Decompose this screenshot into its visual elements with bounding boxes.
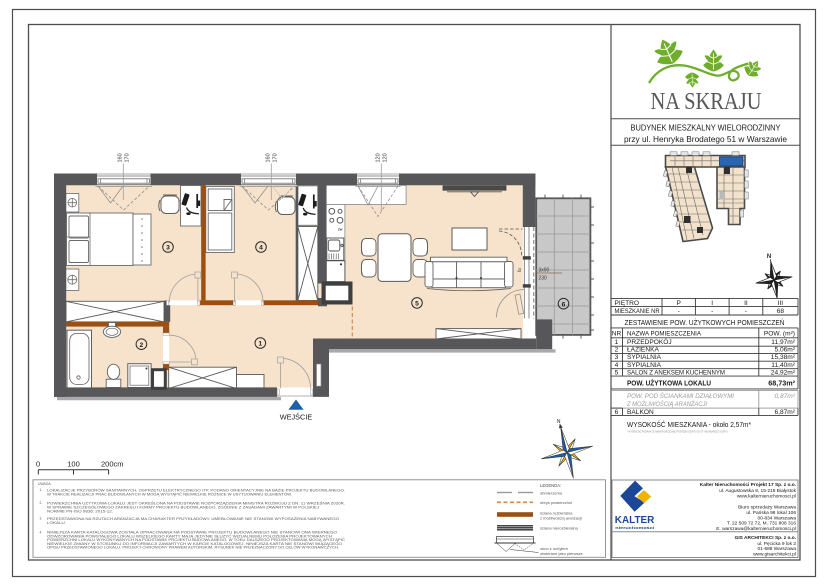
svg-text:ul. Pęcicka 9 lok 2: ul. Pęcicka 9 lok 2 — [757, 541, 796, 547]
svg-text:6,87m²: 6,87m² — [774, 409, 795, 416]
svg-text:Kalter Nieruchomości Projekt 1: Kalter Nieruchomości Projekt 17 Sp. z o.… — [700, 482, 796, 488]
svg-text:120: 120 — [376, 153, 382, 162]
svg-text:170: 170 — [273, 153, 279, 162]
svg-text:W TRAKCIE REALIZACJI PRAC BUDO: W TRAKCIE REALIZACJI PRAC BUDOWLANYCH W … — [47, 491, 292, 496]
svg-text:ul. Pańska 98 lokal 106: ul. Pańska 98 lokal 106 — [746, 510, 796, 516]
svg-text:OPISU PRZEDSTAWIONEGO LOKALU.: OPISU PRZEDSTAWIONEGO LOKALU. PROJEKT CH… — [47, 545, 339, 550]
svg-text:ul. Augustowska 8, 15-218 Biał: ul. Augustowska 8, 15-218 Białystok — [719, 488, 796, 494]
svg-text:obrys powierzchni: obrys powierzchni — [540, 500, 572, 505]
svg-text:4: 4 — [615, 362, 619, 369]
svg-text:N: N — [557, 419, 561, 425]
svg-text:SALON Z ANEKSEM KUCHENNYM: SALON Z ANEKSEM KUCHENNYM — [627, 369, 725, 376]
svg-text:1.: 1. — [40, 488, 43, 492]
svg-text:nieruchomości: nieruchomości — [615, 525, 654, 530]
svg-text:160: 160 — [266, 153, 272, 162]
svg-text:00-834 Warszawa: 00-834 Warszawa — [758, 516, 797, 522]
svg-text:01-688 Warszawa: 01-688 Warszawa — [758, 546, 797, 552]
svg-text:-: - — [711, 308, 713, 315]
svg-text:4.: 4. — [40, 531, 43, 535]
svg-text:otwierane jako pierwsze: otwierane jako pierwsze — [540, 551, 583, 556]
svg-text:11,97m²: 11,97m² — [771, 339, 796, 346]
svg-text:przy ul. Henryka Brodatego 51: przy ul. Henryka Brodatego 51 w Warszawi… — [624, 135, 787, 144]
svg-text:BALKON: BALKON — [627, 409, 654, 416]
svg-text:6: 6 — [615, 409, 619, 416]
svg-text:* WYSOKOŚĆ PODANA OD NIEWYKOŃC: * WYSOKOŚĆ PODANA OD NIEWYKOŃCZONEJ POSA… — [627, 429, 728, 434]
svg-text:160: 160 — [118, 153, 124, 162]
svg-text:NAZWA POMIESZCZENIA: NAZWA POMIESZCZENIA — [627, 331, 702, 338]
svg-text:P: P — [676, 300, 681, 307]
svg-text:2.: 2. — [40, 501, 43, 505]
svg-text:0: 0 — [36, 460, 40, 469]
svg-text:SYPIALNIA: SYPIALNIA — [627, 362, 662, 369]
svg-text:2: 2 — [140, 342, 144, 349]
svg-text:ZW: ZW — [338, 228, 343, 232]
svg-text:PIĘTRO: PIĘTRO — [615, 300, 640, 307]
svg-text:WEJŚCIE: WEJŚCIE — [280, 413, 313, 422]
svg-text:170: 170 — [125, 153, 131, 162]
svg-text:1: 1 — [615, 339, 619, 346]
svg-text:LOKALU.: LOKALU. — [47, 521, 66, 525]
svg-text:3.: 3. — [40, 517, 43, 521]
svg-text:POW. (m²): POW. (m²) — [764, 331, 795, 338]
svg-text:120: 120 — [383, 153, 389, 162]
svg-text:6: 6 — [562, 301, 566, 308]
svg-text:Biuro sprzedaży Warszawa: Biuro sprzedaży Warszawa — [738, 504, 796, 510]
svg-text:NORMIE PN-ISO 9836: 2015-12.: NORMIE PN-ISO 9836: 2015-12. — [47, 509, 113, 513]
svg-text:3x90: 3x90 — [539, 268, 550, 274]
svg-text:WYSOKOŚĆ MIESZKANIA - około 2,: WYSOKOŚĆ MIESZKANIA - około 2,57m* — [627, 420, 751, 429]
svg-text:3: 3 — [615, 354, 619, 361]
svg-text:LEGENDA:: LEGENDA: — [540, 483, 561, 488]
svg-text:obmierzenia: obmierzenia — [540, 490, 563, 495]
svg-text:POW. UŻYTKOWA LOKALU: POW. UŻYTKOWA LOKALU — [627, 378, 711, 387]
svg-text:T. 22 509 72 72, M. 731 808 31: T. 22 509 72 72, M. 731 808 316 — [727, 521, 796, 527]
svg-text:ŁAZIENKA: ŁAZIENKA — [627, 347, 659, 354]
svg-text:UWAGA:: UWAGA: — [38, 482, 52, 486]
svg-text:100: 100 — [67, 460, 80, 469]
svg-text:ściana nierozbieralna: ściana nierozbieralna — [540, 525, 579, 530]
svg-text:NR: NR — [612, 331, 622, 338]
svg-text:4: 4 — [259, 245, 263, 252]
svg-text:11,40m²: 11,40m² — [771, 362, 796, 369]
svg-text:5: 5 — [615, 369, 619, 376]
svg-text:PRZEDPOKÓJ: PRZEDPOKÓJ — [627, 337, 672, 346]
svg-text:0,87m²: 0,87m² — [774, 393, 795, 400]
svg-text:II: II — [744, 300, 748, 307]
svg-text:www.kalternieruchomosci.pl: www.kalternieruchomosci.pl — [737, 494, 796, 500]
svg-text:N: N — [767, 254, 771, 260]
svg-text:www.gisarchitekci.pl: www.gisarchitekci.pl — [753, 552, 796, 558]
svg-text:PRZEDSTAWIONA NA RZUTACH ARANŻ: PRZEDSTAWIONA NA RZUTACH ARANŻACJA MA CH… — [47, 516, 339, 521]
svg-text:NA SKRAJU: NA SKRAJU — [651, 88, 762, 115]
svg-text:5,06m²: 5,06m² — [774, 347, 795, 354]
svg-text:Z MOŻLIWOŚCIĄ ARANŻACJI: Z MOŻLIWOŚCIĄ ARANŻACJI — [626, 399, 707, 408]
svg-text:SYPIALNIA: SYPIALNIA — [627, 354, 662, 361]
svg-text:III: III — [778, 300, 784, 307]
svg-text:1: 1 — [258, 341, 262, 348]
svg-text:BUDYNEK MIESZKALNY WIELORODZIN: BUDYNEK MIESZKALNY WIELORODZINNY — [631, 123, 781, 133]
svg-text:-: - — [678, 308, 680, 315]
svg-text:E. warszawa@kalternieruchomosc: E. warszawa@kalternieruchomosci.pl — [716, 526, 796, 532]
svg-text:68,73m²: 68,73m² — [768, 378, 795, 387]
svg-text:I: I — [711, 300, 713, 307]
svg-text:200cm: 200cm — [101, 460, 124, 469]
svg-text:GIS ARCHITEKCI Sp. z o.o.: GIS ARCHITEKCI Sp. z o.o. — [735, 535, 796, 541]
svg-text:230: 230 — [539, 276, 548, 282]
svg-text:5: 5 — [415, 301, 419, 308]
svg-text:MIESZKANIE NR: MIESZKANIE NR — [615, 308, 660, 315]
svg-text:2: 2 — [615, 347, 619, 354]
svg-text:ZESTAWIENIE POW. UŻYTKOWYCH PO: ZESTAWIENIE POW. UŻYTKOWYCH POMIESZCZEŃ — [625, 318, 785, 327]
svg-text:z możliwością aranżacji: z możliwością aranżacji — [540, 516, 582, 521]
svg-text:POW. POD ŚCIANKAMI DZIAŁOWYMI: POW. POD ŚCIANKAMI DZIAŁOWYMI — [627, 391, 734, 400]
svg-text:68: 68 — [777, 308, 785, 315]
svg-text:-: - — [745, 308, 747, 315]
svg-text:24,92m²: 24,92m² — [771, 369, 796, 376]
svg-text:3: 3 — [166, 245, 170, 252]
svg-text:15,38m²: 15,38m² — [771, 354, 796, 361]
